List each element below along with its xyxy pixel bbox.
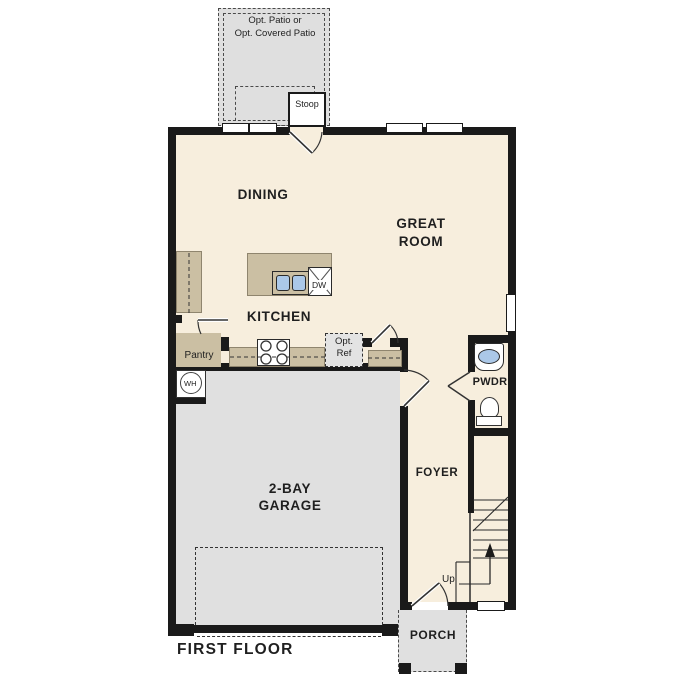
sink-basin-right bbox=[292, 275, 306, 291]
great-room-line1: GREAT bbox=[396, 215, 445, 233]
garage-label: 2-BAY GARAGE bbox=[259, 481, 322, 514]
wall-front-mid bbox=[448, 602, 478, 610]
pantry-label: Pantry bbox=[185, 350, 214, 361]
wall-garage-bottom-post-left bbox=[168, 624, 194, 636]
patio-label: Opt. Patio or Opt. Covered Patio bbox=[235, 15, 316, 40]
stoop-door-gap bbox=[290, 127, 323, 135]
window-stairs bbox=[477, 601, 505, 611]
dining-cabinet bbox=[176, 251, 202, 313]
drop-zone-counter bbox=[368, 350, 402, 367]
range bbox=[257, 339, 290, 366]
patio-label-line2: Opt. Covered Patio bbox=[235, 28, 316, 41]
great-room-line2: ROOM bbox=[396, 233, 445, 251]
up-label: Up bbox=[442, 574, 455, 585]
foyer-label: FOYER bbox=[416, 467, 459, 479]
dining-label: DINING bbox=[238, 187, 289, 202]
wall-left bbox=[168, 127, 176, 633]
toilet-bowl bbox=[480, 397, 499, 418]
wall-right bbox=[508, 127, 516, 610]
window-dining-2 bbox=[249, 123, 277, 133]
garage-door-gap bbox=[400, 372, 408, 406]
wall-pwdr-bottom bbox=[468, 428, 508, 436]
kitchen-label: KITCHEN bbox=[247, 309, 311, 324]
wall-front-right bbox=[505, 602, 516, 610]
wall-stub-counter bbox=[220, 337, 229, 351]
patio-label-line1: Opt. Patio or bbox=[235, 15, 316, 28]
window-right-wall bbox=[506, 294, 516, 332]
garage-line1: 2-BAY bbox=[259, 481, 322, 498]
opt-ref-line2: Ref bbox=[335, 348, 353, 360]
stoop-label: Stoop bbox=[295, 99, 319, 109]
opt-ref-line1: Opt. bbox=[335, 336, 353, 348]
wall-top bbox=[168, 127, 516, 135]
porch-post-left bbox=[399, 663, 411, 674]
window-great-room-2 bbox=[426, 123, 463, 133]
porch-post-right bbox=[455, 663, 467, 674]
opt-ref-label: Opt. Ref bbox=[335, 336, 353, 359]
wall-garage-bottom bbox=[168, 625, 408, 633]
wall-stub-closet-left bbox=[363, 338, 372, 347]
wall-pwdr-left-lower bbox=[468, 400, 475, 428]
floor-plan-canvas: Opt. Patio or Opt. Covered Patio Stoop O… bbox=[0, 0, 687, 687]
wall-stairs-left bbox=[468, 436, 474, 513]
porch-label: PORCH bbox=[410, 628, 456, 642]
sink-basin-left bbox=[276, 275, 290, 291]
wall-front-left bbox=[400, 602, 412, 610]
pwdr-label: PWDR bbox=[473, 376, 508, 388]
plan-title: FIRST FLOOR bbox=[177, 641, 294, 659]
garage-line2: GARAGE bbox=[259, 498, 322, 515]
pwdr-sink-basin bbox=[478, 349, 500, 364]
wall-stub-pantry bbox=[168, 315, 182, 323]
garage-door-outline bbox=[195, 547, 383, 625]
garage-door-dashes bbox=[197, 636, 381, 637]
wall-stub-closet-right bbox=[390, 338, 402, 347]
great-room-label: GREAT ROOM bbox=[396, 215, 445, 250]
wh-label: WH bbox=[184, 379, 197, 388]
dishwasher-label: DW bbox=[311, 280, 327, 290]
window-dining-1 bbox=[222, 123, 249, 133]
wall-wh-niche-bottom bbox=[168, 397, 206, 404]
window-great-room-1 bbox=[386, 123, 423, 133]
stoop-box bbox=[288, 92, 326, 127]
toilet-tank bbox=[476, 416, 502, 426]
